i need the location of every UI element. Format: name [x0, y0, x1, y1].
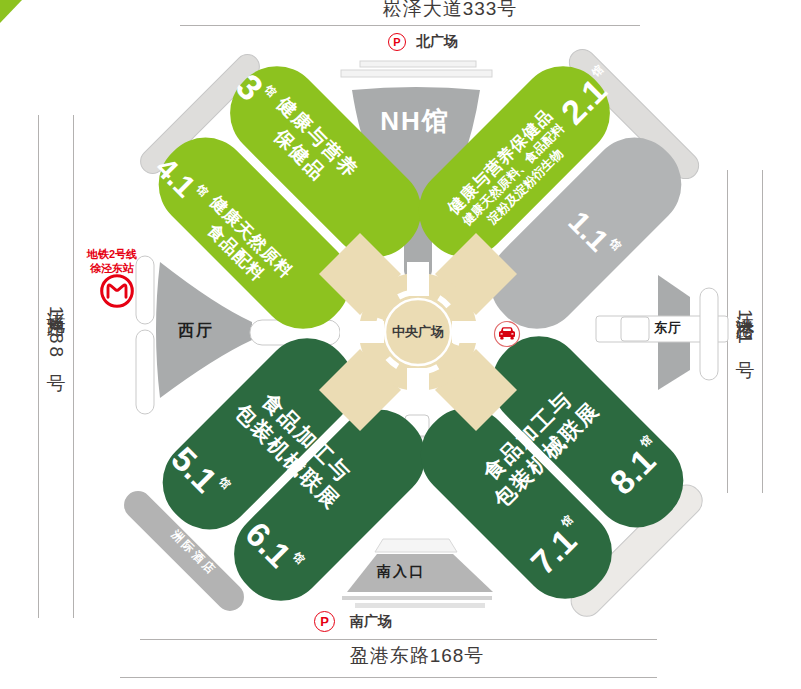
- shanghai-metro-icon: [99, 273, 135, 309]
- north-plaza-label: 北广场: [416, 33, 458, 51]
- east-hall-label: 东厅: [654, 319, 682, 337]
- east-corridor-node: [621, 317, 649, 341]
- south-parking-icon: P: [314, 611, 335, 632]
- south-entrance-label: 南入口: [377, 563, 425, 581]
- south-road-name: 盈港东路168号: [350, 643, 485, 669]
- metro-station-label: 地铁2号线 徐泾东站: [87, 248, 137, 276]
- south-entrance-canopy: [375, 539, 457, 552]
- central-plaza-label: 中央广场: [392, 323, 444, 341]
- nh-hall-label: NH馆: [380, 104, 450, 139]
- north-road-name: 崧泽大道333号: [383, 0, 518, 22]
- west-hall-label: 西厅: [178, 321, 214, 342]
- west-entry-band-1: [136, 256, 154, 324]
- west-entry-band-2: [136, 330, 154, 414]
- south-entrance-step-1: [342, 596, 492, 600]
- north-plaza-strip-2: [341, 70, 492, 77]
- north-parking-icon: P: [388, 33, 406, 51]
- south-entrance-step-2: [355, 603, 485, 608]
- west-road-name: 诸光路1888号: [43, 297, 69, 363]
- east-entry-band: [700, 288, 718, 380]
- car-dropoff-icon: [493, 320, 521, 348]
- east-road-name: 涞港路111号: [732, 300, 758, 350]
- south-plaza-label: 南广场: [350, 613, 392, 631]
- north-plaza-strip-1: [360, 61, 476, 67]
- metro-line-label: 地铁2号线: [87, 248, 137, 260]
- exhibition-center-map: 中央广场 3馆 健康与营养 保健品 4.1馆 健康天然原料 食品配料 健康与营养…: [0, 0, 801, 689]
